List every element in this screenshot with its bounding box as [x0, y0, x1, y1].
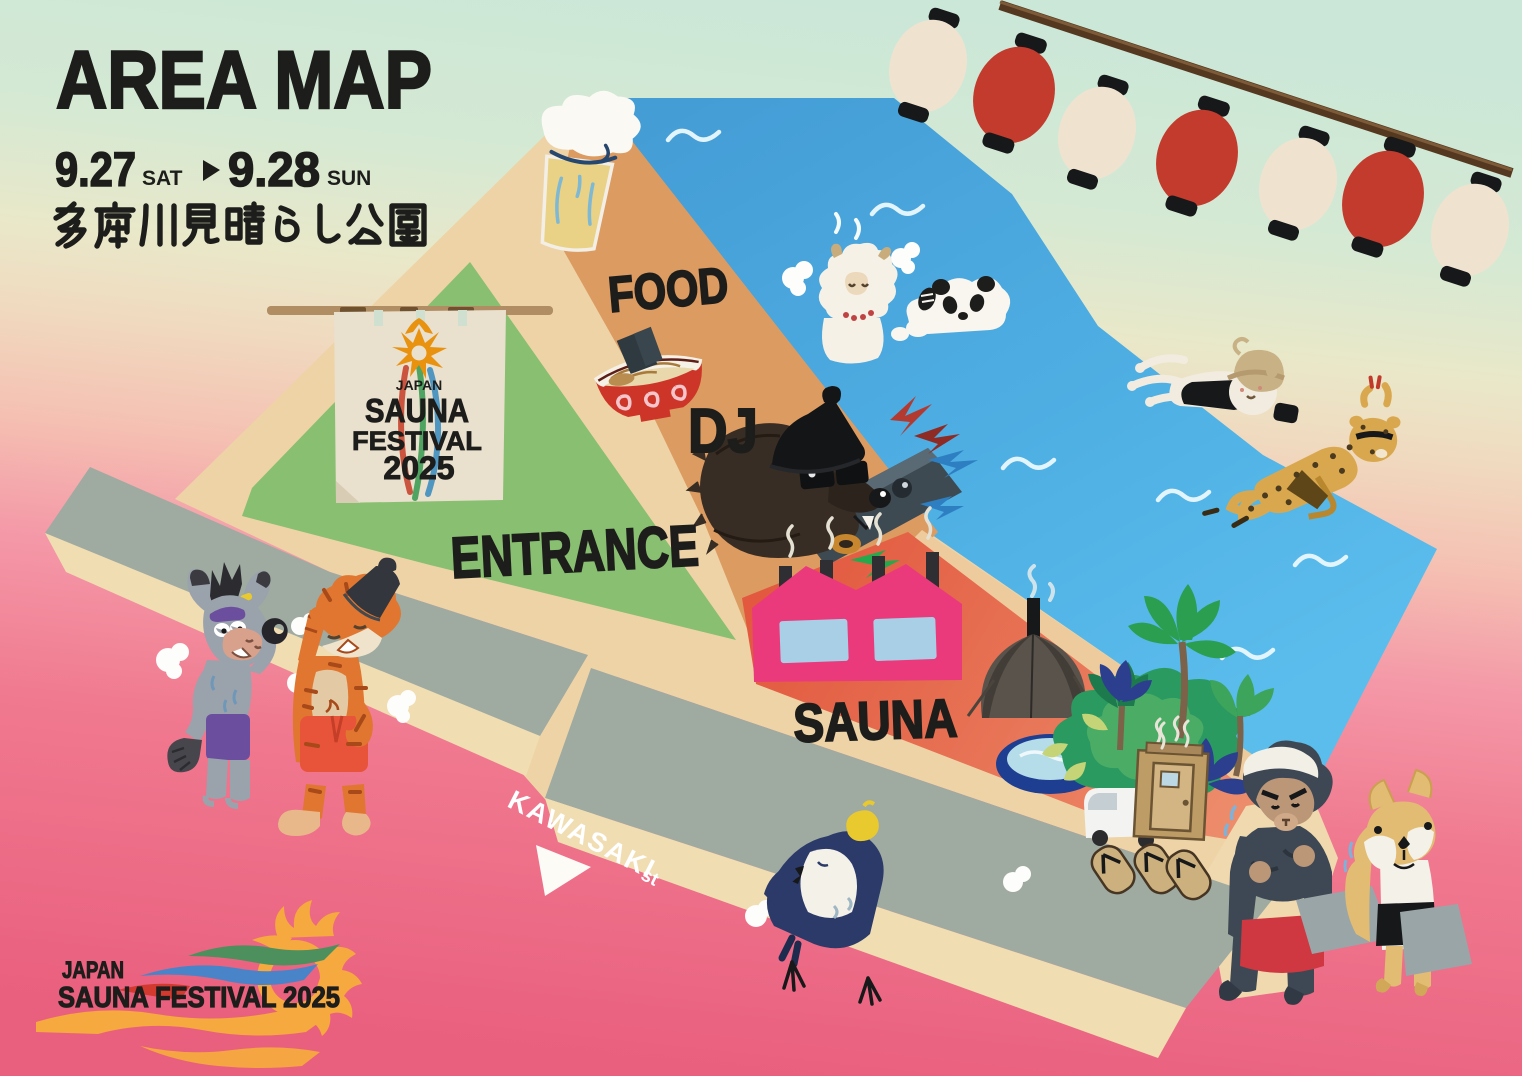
svg-text:AREA MAP: AREA MAP	[56, 35, 432, 126]
svg-text:9.27: 9.27	[55, 144, 136, 197]
svg-text:JAPAN: JAPAN	[396, 377, 442, 393]
svg-text:FOOD: FOOD	[606, 257, 730, 323]
svg-text:SAUNA: SAUNA	[792, 688, 958, 754]
svg-text:SUN: SUN	[327, 167, 371, 190]
svg-text:2025: 2025	[383, 450, 454, 486]
svg-text:ENTRANCE: ENTRANCE	[449, 513, 700, 591]
svg-text:SAUNA: SAUNA	[365, 392, 469, 429]
svg-text:SAT: SAT	[142, 167, 183, 190]
svg-text:JAPAN: JAPAN	[62, 957, 124, 984]
svg-text:9.28: 9.28	[228, 144, 320, 197]
svg-text:DJ: DJ	[688, 397, 758, 466]
svg-text:SAUNA FESTIVAL 2025: SAUNA FESTIVAL 2025	[58, 982, 340, 1014]
